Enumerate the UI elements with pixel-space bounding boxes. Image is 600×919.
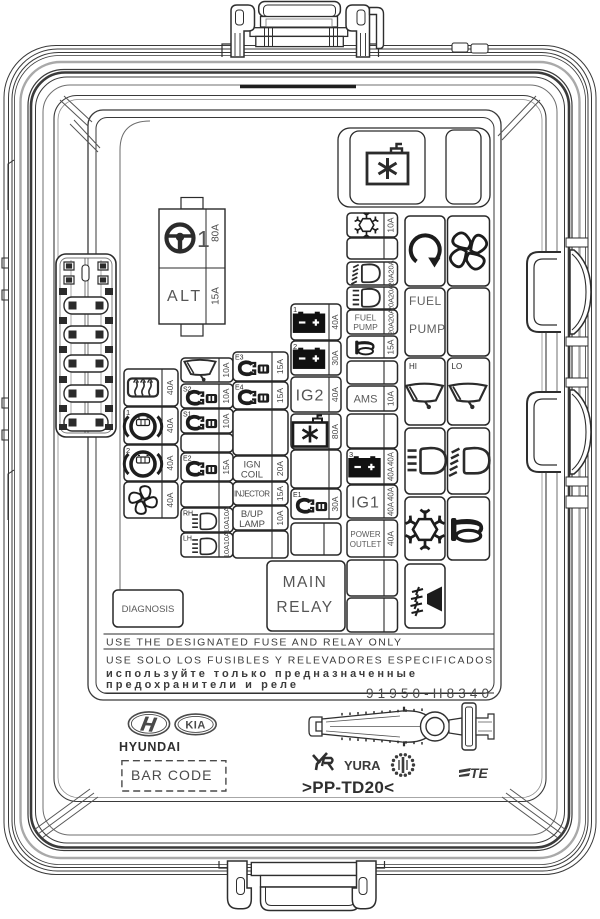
svg-text:S1: S1 bbox=[183, 412, 192, 419]
svg-text:E2: E2 bbox=[183, 456, 192, 463]
svg-text:15A: 15A bbox=[275, 486, 285, 501]
svg-text:AMS: AMS bbox=[354, 394, 378, 406]
svg-text:IG1: IG1 bbox=[351, 495, 380, 512]
svg-text:20A: 20A bbox=[386, 322, 395, 335]
svg-text:INJECTOR: INJECTOR bbox=[234, 490, 270, 499]
svg-text:15A: 15A bbox=[275, 359, 285, 374]
svg-text:1: 1 bbox=[197, 226, 210, 252]
svg-text:15A: 15A bbox=[275, 388, 285, 403]
svg-text:20A: 20A bbox=[386, 285, 395, 298]
svg-text:PUMP: PUMP bbox=[353, 322, 378, 332]
svg-text:40A: 40A bbox=[386, 466, 395, 481]
svg-text:DIAGNOSIS: DIAGNOSIS bbox=[122, 604, 175, 615]
svg-text:15A: 15A bbox=[386, 339, 396, 354]
svg-text:FUEL: FUEL bbox=[355, 313, 377, 323]
svg-text:10A: 10A bbox=[222, 545, 231, 558]
svg-text:91950-H8340: 91950-H8340 bbox=[366, 686, 490, 701]
svg-text:40A: 40A bbox=[165, 380, 175, 395]
svg-text:20A: 20A bbox=[386, 260, 395, 273]
svg-text:OUTLET: OUTLET bbox=[350, 540, 382, 549]
svg-text:USE THE DESIGNATED FUSE AND RE: USE THE DESIGNATED FUSE AND RELAY ONLY bbox=[106, 637, 401, 649]
svg-text:предохранители и реле: предохранители и реле bbox=[106, 679, 296, 691]
svg-text:E4: E4 bbox=[235, 385, 244, 392]
svg-text:10A: 10A bbox=[386, 391, 396, 406]
svg-text:HYUNDAI: HYUNDAI bbox=[119, 740, 180, 754]
svg-text:LO: LO bbox=[452, 362, 463, 371]
svg-text:10A: 10A bbox=[222, 520, 231, 533]
svg-text:YURA: YURA bbox=[344, 758, 381, 773]
svg-text:IG2: IG2 bbox=[296, 388, 325, 405]
svg-text:30A: 30A bbox=[330, 350, 340, 365]
svg-text:COIL: COIL bbox=[241, 470, 263, 481]
svg-text:2: 2 bbox=[126, 446, 130, 455]
svg-text:>PP-TD20<: >PP-TD20< bbox=[302, 778, 394, 797]
svg-text:40A: 40A bbox=[330, 387, 340, 402]
svg-text:20A: 20A bbox=[386, 273, 395, 286]
svg-text:40A: 40A bbox=[386, 531, 396, 546]
svg-text:TE: TE bbox=[470, 765, 489, 781]
svg-text:40A: 40A bbox=[386, 451, 395, 466]
svg-text:E3: E3 bbox=[235, 355, 244, 362]
svg-text:40A: 40A bbox=[165, 492, 175, 507]
svg-text:30A: 30A bbox=[330, 496, 340, 511]
svg-text:3: 3 bbox=[349, 450, 353, 459]
svg-text:RELAY: RELAY bbox=[276, 599, 333, 616]
svg-text:LAMP: LAMP bbox=[239, 519, 265, 530]
svg-text:LH: LH bbox=[183, 536, 192, 543]
svg-text:USE SOLO LOS FUSIBLES Y RELEVA: USE SOLO LOS FUSIBLES Y RELEVADORES ESPE… bbox=[106, 655, 492, 667]
svg-text:PUMP: PUMP bbox=[409, 322, 446, 336]
svg-text:40A: 40A bbox=[165, 418, 175, 433]
svg-text:10A: 10A bbox=[222, 507, 231, 520]
svg-text:40A: 40A bbox=[386, 486, 395, 501]
svg-text:10A: 10A bbox=[221, 413, 231, 428]
svg-text:BAR CODE: BAR CODE bbox=[131, 767, 213, 783]
svg-text:KIA: KIA bbox=[185, 720, 205, 732]
svg-text:80A: 80A bbox=[210, 224, 221, 242]
svg-text:1: 1 bbox=[126, 408, 130, 417]
svg-text:10A: 10A bbox=[386, 217, 396, 232]
svg-text:FUEL: FUEL bbox=[409, 294, 442, 308]
svg-text:15A: 15A bbox=[221, 459, 231, 474]
svg-text:10A: 10A bbox=[221, 388, 231, 403]
svg-text:40A: 40A bbox=[330, 314, 340, 329]
svg-text:POWER: POWER bbox=[350, 530, 380, 539]
svg-text:20A: 20A bbox=[275, 461, 285, 476]
svg-text:S2: S2 bbox=[183, 387, 192, 394]
svg-text:15A: 15A bbox=[210, 287, 221, 305]
svg-text:2: 2 bbox=[293, 342, 297, 351]
svg-text:E1: E1 bbox=[293, 492, 302, 499]
svg-text:10A: 10A bbox=[275, 510, 285, 525]
svg-text:40A: 40A bbox=[165, 455, 175, 470]
svg-text:20A: 20A bbox=[386, 309, 395, 322]
svg-text:MAIN: MAIN bbox=[283, 574, 328, 591]
svg-text:HI: HI bbox=[409, 362, 417, 371]
svg-text:40A: 40A bbox=[386, 501, 395, 516]
svg-text:1: 1 bbox=[293, 305, 297, 314]
svg-text:80A: 80A bbox=[330, 424, 340, 439]
svg-text:ALT: ALT bbox=[167, 288, 203, 305]
svg-text:RH: RH bbox=[183, 511, 193, 518]
svg-text:10A: 10A bbox=[221, 362, 231, 377]
svg-text:10A: 10A bbox=[222, 532, 231, 545]
